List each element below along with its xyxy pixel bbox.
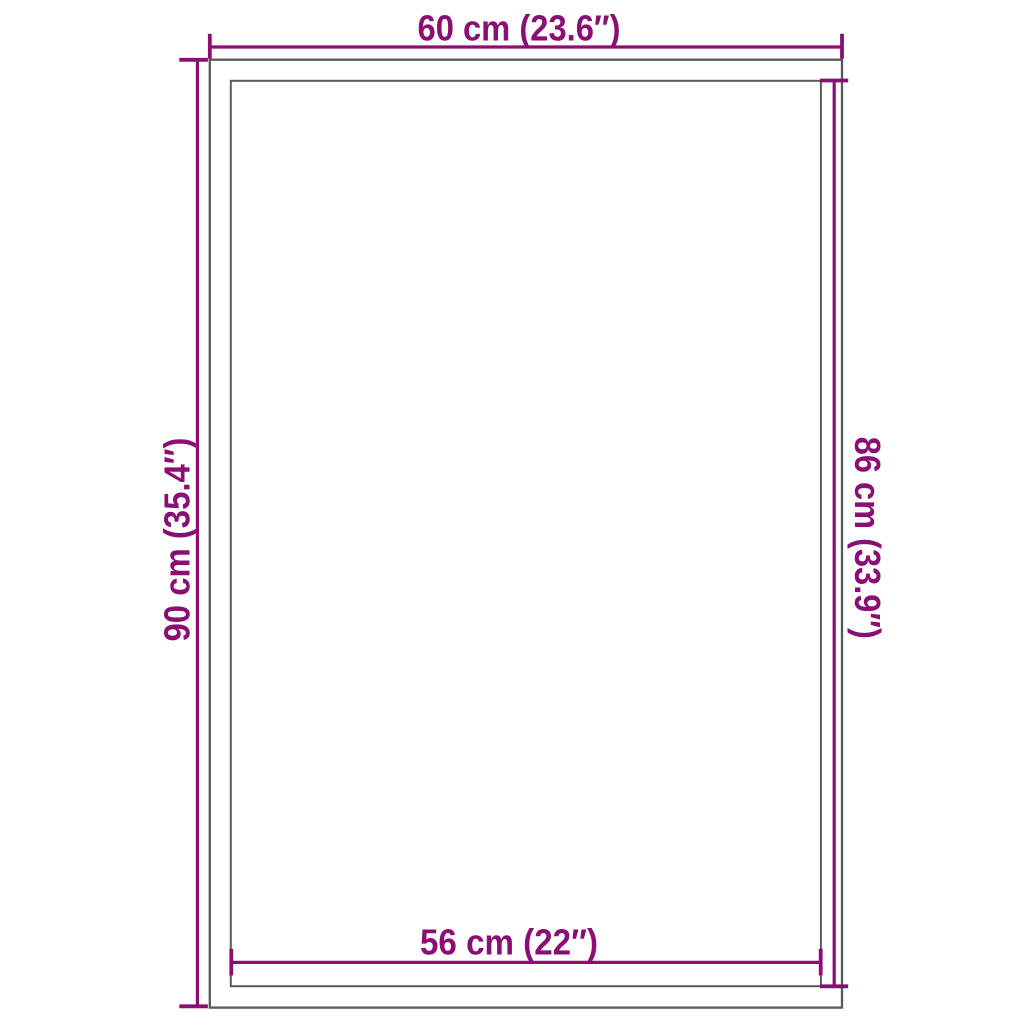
svg-text:86 cm (33.9″): 86 cm (33.9″) (847, 437, 888, 639)
svg-text:56 cm (22″): 56 cm (22″) (420, 922, 598, 963)
svg-text:90 cm (35.4″): 90 cm (35.4″) (156, 438, 197, 642)
svg-text:60 cm (23.6″): 60 cm (23.6″) (418, 8, 621, 49)
